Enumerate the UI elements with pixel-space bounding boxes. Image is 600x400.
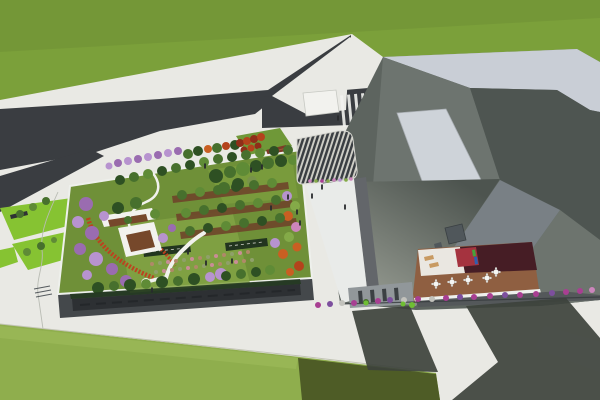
cafe-tables [431,283,433,285]
trees [267,178,277,188]
flowering-shrub-row [387,297,393,303]
understory-shrubs [154,270,158,274]
trees [124,279,136,291]
trees [173,276,183,286]
cafe-tables [449,279,454,284]
plaza-flower-row [338,178,342,182]
cafe-tables [463,279,465,281]
cafe-tables [435,279,437,281]
trees [251,267,261,277]
trees [255,148,265,158]
trees [99,211,109,221]
cafe-tables [499,271,501,273]
trees [239,218,249,228]
understory-shrubs [150,262,154,266]
trees [290,201,300,211]
trees [284,232,294,242]
trees [129,172,139,182]
plaza-flower-row [308,179,312,183]
cafe-tables [467,275,469,277]
trees [177,190,187,200]
accent-bush [401,302,406,307]
understory-shrubs [214,254,218,258]
trees [51,237,57,243]
median-island [303,90,339,116]
site-plan-rendering-canvas [0,0,600,400]
cafe-tables [491,271,493,273]
plaza-flower-row [332,178,336,182]
pedestrians [151,287,153,292]
cafe-tables [439,283,441,285]
trees [124,216,132,224]
trees [158,233,168,243]
trees [265,265,275,275]
trees [106,263,118,275]
trees [16,210,24,218]
trees [164,149,172,157]
trees [72,216,84,228]
flowering-shrub-row [429,296,435,302]
understory-shrubs [162,269,166,273]
trees [114,159,122,167]
pedestrians [299,220,301,225]
trees [174,147,182,155]
trees [293,243,302,252]
trees [221,271,231,281]
striped-plaza [297,131,357,184]
trees [236,269,246,279]
cafe-tables [447,281,449,283]
trees [154,151,162,159]
flowering-shrub-row [443,295,449,301]
flowering-shrub-row [457,294,463,300]
trees [294,261,304,271]
architectural-rendering [0,0,600,400]
trees [199,157,209,167]
cafe-tables [471,279,473,281]
trees [134,155,142,163]
trees [150,209,160,219]
trees [241,150,251,160]
trees [224,166,236,178]
trees [275,213,285,223]
trees [195,187,205,197]
trees [171,163,181,173]
flowering-shrub-row [471,294,477,300]
trees [250,135,258,143]
pedestrians [204,163,206,168]
understory-shrubs [210,263,214,267]
trees [203,223,213,233]
trees [23,248,31,256]
trees [262,157,274,169]
flowering-shrub-row [375,298,381,304]
plaza-flower-row [314,179,318,183]
trees [42,197,50,205]
trees [205,272,215,282]
trees [213,185,223,195]
trees [185,160,195,170]
flowering-shrub-row [549,290,555,296]
trees [193,146,203,156]
trees [243,137,251,145]
trees [181,208,191,218]
trees [204,145,212,153]
trees [282,191,292,201]
trees [124,157,132,165]
understory-shrubs [206,255,210,259]
trees [283,145,293,155]
understory-shrubs [218,262,222,266]
flowering-shrub-row [315,302,321,308]
cafe-tables [495,267,497,269]
trees [106,163,113,170]
trees [222,142,230,150]
pedestrians [270,205,272,210]
understory-shrubs [186,266,190,270]
understory-shrubs [166,260,170,264]
cafe-tables [435,287,437,289]
pedestrians [261,164,263,169]
plaza-flower-row [326,179,330,183]
trees [278,249,288,259]
flowering-shrub-row [589,287,595,293]
pedestrians [287,194,289,199]
cafe-tables [451,285,453,287]
understory-shrubs [234,260,238,264]
trees [183,149,193,159]
trees [109,281,119,291]
trees [249,180,259,190]
trees [199,205,209,215]
pedestrians [205,260,207,265]
accent-bush [409,302,415,308]
flowering-shrub-row [487,293,493,299]
pedestrians [344,204,346,209]
trees [188,273,200,285]
accent-bush [364,301,369,306]
trees [271,195,281,205]
understory-shrubs [226,261,230,265]
facade-window-square [445,224,466,244]
cafe-tables [493,269,498,274]
understory-shrubs [190,257,194,261]
plaza-flower-row [344,178,348,182]
flowering-shrub-row [415,296,421,302]
trees [235,200,245,210]
trees [209,169,223,183]
trees [236,139,244,147]
trees [257,216,267,226]
pedestrians [187,249,189,254]
trees [253,198,263,208]
flowering-shrub-row [502,292,508,298]
trees [115,175,125,185]
understory-shrubs [222,253,226,257]
trees [221,221,231,231]
cafe-tables [451,277,453,279]
trees [112,202,124,214]
flowering-shrub-row [351,300,357,306]
understory-shrubs [178,267,182,271]
pedestrians [231,258,233,263]
trees [275,155,287,167]
cafe-tables [455,281,457,283]
trees [212,143,222,153]
trees [227,152,237,162]
trees [248,145,255,152]
cafe-tables [490,277,492,279]
trees [143,169,153,179]
plaza-flower-row [349,177,353,181]
flowering-shrub-row [533,291,539,297]
trees [286,268,294,276]
trees [236,162,250,176]
understory-shrubs [194,265,198,269]
trees [168,224,176,232]
understory-shrubs [246,250,250,254]
trees [185,226,195,236]
understory-shrubs [182,258,186,262]
cafe-tables [465,277,470,282]
cafe-tables [467,283,469,285]
plaza-flower-row [320,179,324,183]
trees [74,243,86,255]
understory-shrubs [238,251,242,255]
trees [257,133,265,141]
trees [79,197,93,211]
understory-shrubs [230,252,234,256]
pedestrians [296,209,298,214]
cafe-tables [486,273,488,275]
flowering-shrub-row [339,300,345,306]
trees [141,279,151,289]
cafe-tables [486,281,488,283]
trees [144,153,152,161]
pedestrians [250,167,252,172]
trees [130,197,142,209]
trees [156,276,168,288]
flowering-shrub-row [577,288,583,294]
trees [85,226,99,240]
trees [270,238,280,248]
understory-shrubs [198,256,202,260]
flowering-shrub-row [517,292,523,298]
understory-shrubs [174,259,178,263]
trees [157,166,167,176]
flowering-shrub-row [563,289,569,295]
trees [29,203,37,211]
cafe-tables [433,281,438,286]
trees [213,154,223,164]
understory-shrubs [158,261,162,265]
flowering-shrub-row [327,301,333,307]
trees [269,146,279,156]
pedestrians [311,193,313,198]
trees [89,252,103,266]
understory-shrubs [250,258,254,262]
pedestrians [321,184,323,189]
cafe-tables [484,275,489,280]
trees [217,203,227,213]
understory-shrubs [242,259,246,263]
cafe-tables [495,275,497,277]
trees [231,182,241,192]
pedestrians [337,115,339,120]
trees [82,270,92,280]
understory-shrubs [170,268,174,272]
trees [37,242,45,250]
cafe-tables [482,277,484,279]
